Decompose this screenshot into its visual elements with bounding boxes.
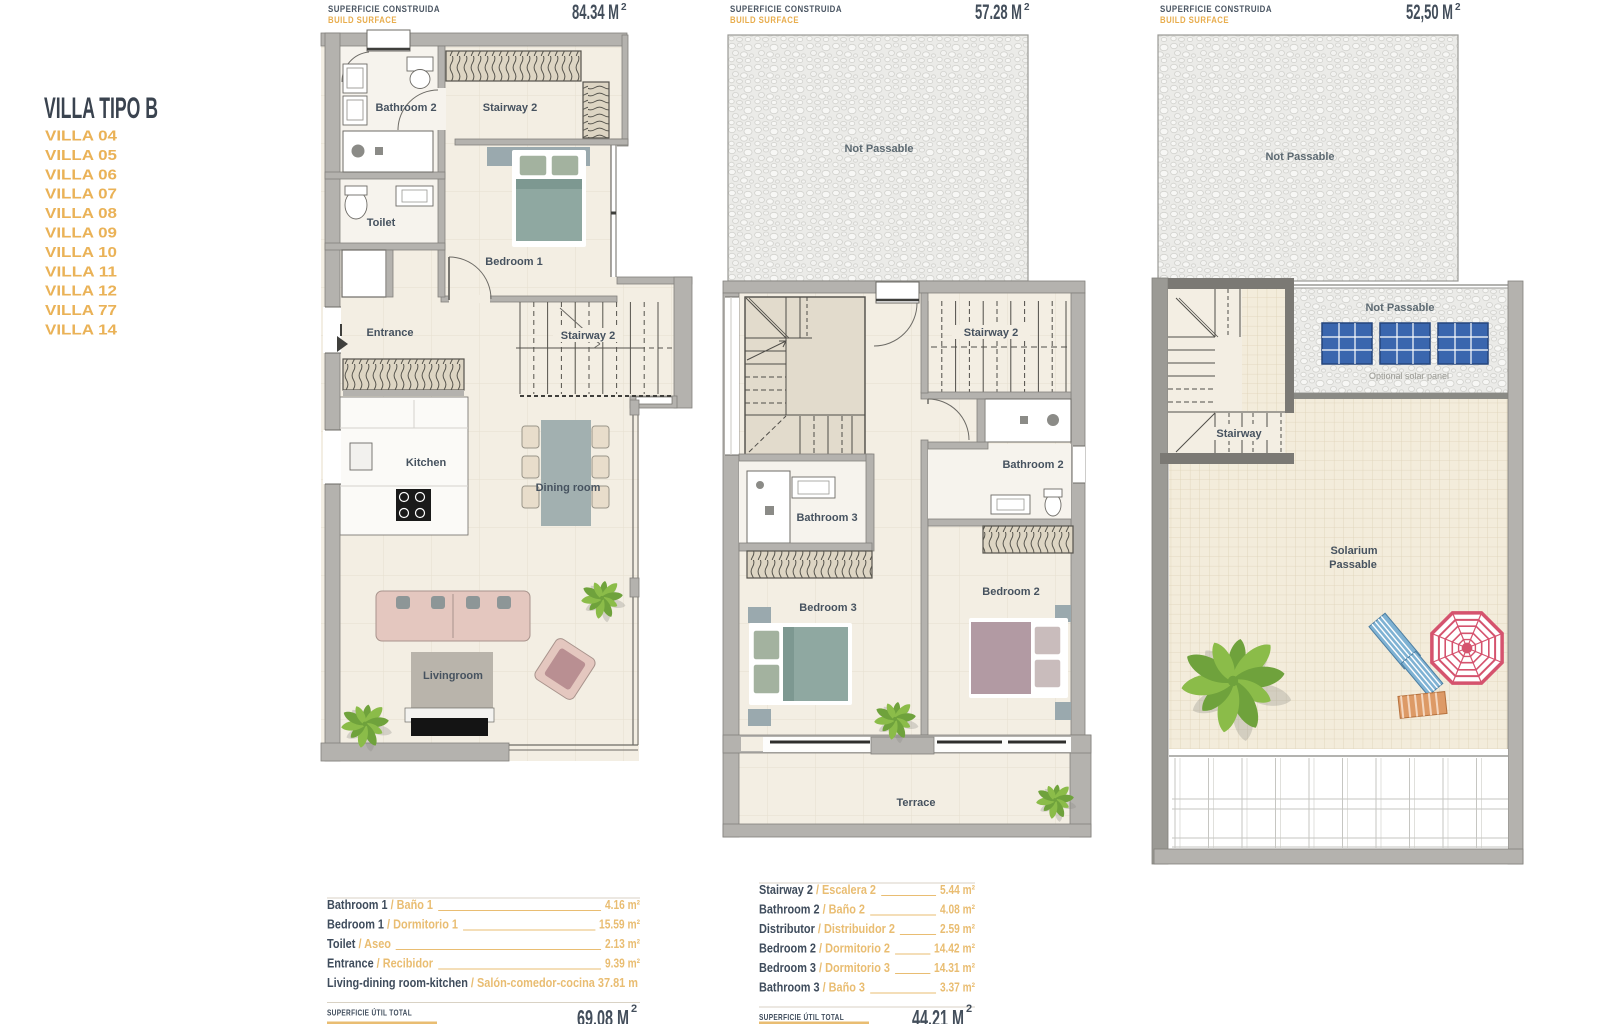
svg-text:Not Passable: Not Passable (1365, 302, 1434, 314)
svg-text:VILLA 08: VILLA 08 (45, 205, 117, 222)
svg-text:Bathroom 1 / Baño 1: Bathroom 1 / Baño 1 (327, 898, 433, 912)
svg-text:Bathroom 3 / Baño 3: Bathroom 3 / Baño 3 (759, 981, 865, 995)
svg-text:Bedroom 3 / Dormitorio 3: Bedroom 3 / Dormitorio 3 (759, 961, 890, 975)
svg-text:Passable: Passable (1329, 559, 1377, 571)
svg-text:VILLA 10: VILLA 10 (45, 244, 117, 261)
svg-text:44.21 M: 44.21 M (912, 1005, 964, 1024)
svg-text:Toilet: Toilet (367, 217, 396, 229)
svg-text:Stairway: Stairway (1216, 428, 1262, 440)
svg-text:Kitchen: Kitchen (406, 457, 447, 469)
svg-text:9.39 m²: 9.39 m² (605, 957, 640, 971)
svg-text:Bathroom 2: Bathroom 2 (375, 102, 436, 114)
svg-text:VILLA 05: VILLA 05 (45, 147, 117, 164)
svg-text:BUILD SURFACE: BUILD SURFACE (328, 15, 397, 25)
svg-text:Not Passable: Not Passable (844, 143, 913, 155)
svg-text:SUPERFICIE ÚTIL TOTAL: SUPERFICIE ÚTIL TOTAL (327, 1007, 412, 1018)
svg-text:Entrance: Entrance (366, 327, 413, 339)
svg-text:VILLA TIPO B: VILLA TIPO B (44, 92, 158, 125)
svg-text:Bedroom 2 / Dormitorio 2: Bedroom 2 / Dormitorio 2 (759, 942, 890, 956)
svg-text:5.44 m²: 5.44 m² (940, 883, 975, 897)
svg-text:Stairway 2: Stairway 2 (964, 327, 1018, 339)
svg-text:VILLA 77: VILLA 77 (45, 302, 117, 319)
svg-text:VILLA 11: VILLA 11 (45, 263, 117, 280)
svg-text:4.16 m²: 4.16 m² (605, 898, 640, 912)
svg-text:14.31 m²: 14.31 m² (934, 961, 975, 975)
svg-text:VILLA 06: VILLA 06 (45, 166, 117, 183)
svg-text:Bathroom 2: Bathroom 2 (1002, 459, 1063, 471)
svg-text:VILLA 14: VILLA 14 (45, 322, 118, 339)
svg-text:VILLA 09: VILLA 09 (45, 225, 117, 242)
svg-text:SUPERFICIE CONSTRUIDA: SUPERFICIE CONSTRUIDA (730, 4, 842, 14)
svg-text:SUPERFICIE ÚTIL TOTAL: SUPERFICIE ÚTIL TOTAL (759, 1011, 844, 1022)
svg-text:Distributor / Distribuidor 2: Distributor / Distribuidor 2 (759, 922, 895, 936)
svg-text:57.28 M: 57.28 M (975, 1, 1022, 24)
svg-text:BUILD SURFACE: BUILD SURFACE (1160, 15, 1229, 25)
svg-text:VILLA 04: VILLA 04 (45, 128, 118, 145)
svg-text:Stairway 2: Stairway 2 (561, 330, 615, 342)
svg-text:Stairway 2: Stairway 2 (483, 102, 537, 114)
svg-text:Bedroom 1: Bedroom 1 (485, 256, 542, 268)
svg-text:Terrace: Terrace (897, 797, 936, 809)
svg-text:2: 2 (966, 1003, 972, 1015)
svg-text:Stairway 2 / Escalera 2: Stairway 2 / Escalera 2 (759, 883, 876, 897)
svg-text:SUPERFICIE CONSTRUIDA: SUPERFICIE CONSTRUIDA (328, 4, 440, 14)
svg-text:2: 2 (621, 2, 627, 13)
svg-text:Bedroom 2: Bedroom 2 (982, 586, 1039, 598)
svg-text:VILLA 12: VILLA 12 (45, 283, 117, 300)
svg-text:Optional solar panel: Optional solar panel (1369, 371, 1449, 381)
svg-text:SUPERFICIE CONSTRUIDA: SUPERFICIE CONSTRUIDA (1160, 4, 1272, 14)
svg-text:2: 2 (631, 1003, 637, 1015)
svg-text:Solarium: Solarium (1330, 545, 1377, 557)
svg-text:Bathroom 3: Bathroom 3 (796, 512, 857, 524)
svg-text:69.08 M: 69.08 M (577, 1005, 629, 1024)
svg-text:Entrance / Recibidor: Entrance / Recibidor (327, 957, 433, 971)
svg-text:Not Passable: Not Passable (1265, 151, 1334, 163)
svg-text:BUILD SURFACE: BUILD SURFACE (730, 15, 799, 25)
svg-text:2.59 m²: 2.59 m² (940, 922, 975, 936)
svg-text:VILLA 07: VILLA 07 (45, 186, 117, 203)
svg-text:Bedroom 3: Bedroom 3 (799, 602, 856, 614)
svg-text:Living-dining room-kitchen / S: Living-dining room-kitchen / Salón-comed… (327, 976, 638, 990)
svg-text:84.34 M: 84.34 M (572, 1, 619, 24)
svg-text:Toilet / Aseo: Toilet / Aseo (327, 937, 391, 951)
svg-text:15.59 m²: 15.59 m² (599, 918, 640, 932)
svg-text:Bathroom 2 / Baño 2: Bathroom 2 / Baño 2 (759, 903, 865, 917)
svg-text:Bedroom 1 / Dormitorio 1: Bedroom 1 / Dormitorio 1 (327, 918, 458, 932)
svg-text:3.37 m²: 3.37 m² (940, 981, 975, 995)
svg-text:2: 2 (1455, 2, 1461, 13)
svg-text:Livingroom: Livingroom (423, 670, 483, 682)
svg-text:52,50 M: 52,50 M (1406, 1, 1453, 24)
svg-text:14.42 m²: 14.42 m² (934, 942, 975, 956)
svg-text:2: 2 (1024, 2, 1030, 13)
svg-text:2.13 m²: 2.13 m² (605, 937, 640, 951)
svg-text:4.08 m²: 4.08 m² (940, 903, 975, 917)
svg-text:Dining room: Dining room (536, 482, 601, 494)
